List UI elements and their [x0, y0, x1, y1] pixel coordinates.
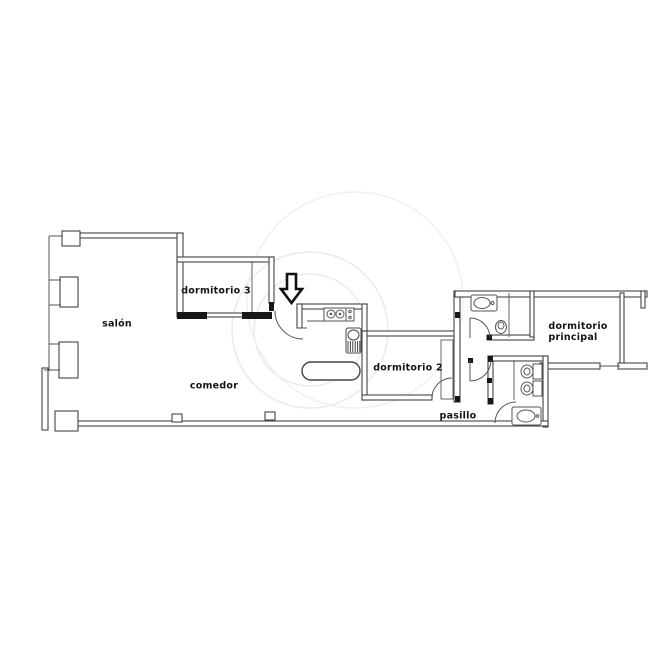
- kitchen-fixtures: [307, 308, 354, 321]
- water-heater: [346, 328, 361, 353]
- room-label-comedor: comedor: [190, 381, 238, 392]
- room-label-pasillo: pasillo: [440, 411, 477, 422]
- bathroom2-fixtures: [512, 364, 542, 425]
- room-label-dormitorio-principal: dormitorio principal: [548, 321, 607, 343]
- floor-plan-page: salón dormitorio 3 comedor dormitorio 2 …: [0, 0, 661, 661]
- room-label-salon: salón: [102, 319, 132, 330]
- kitchen-island: [302, 362, 360, 380]
- bathroom1-fixtures: [471, 295, 507, 334]
- room-label-dormitorio-principal-line1: dormitorio: [548, 321, 607, 332]
- entrance-arrow-icon: [281, 274, 302, 303]
- room-label-dormitorio-3: dormitorio 3: [181, 286, 251, 297]
- room-label-dormitorio-principal-line2: principal: [548, 332, 607, 343]
- room-label-dormitorio-2: dormitorio 2: [373, 363, 443, 374]
